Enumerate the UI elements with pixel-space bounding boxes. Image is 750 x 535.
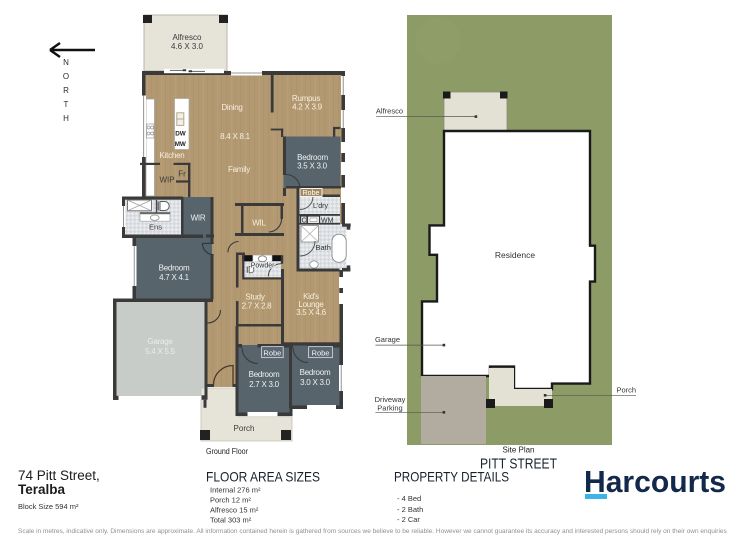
svg-text:Robe: Robe [303,190,320,197]
svg-text:Garage: Garage [375,335,400,344]
svg-text:WIP: WIP [159,176,174,185]
svg-text:DW: DW [175,130,186,137]
svg-text:Alfresco 15 m²: Alfresco 15 m² [210,506,259,515]
svg-text:2.7 X 3.0: 2.7 X 3.0 [249,380,280,389]
svg-text:Site Plan: Site Plan [502,446,534,455]
svg-text:Dining: Dining [221,103,242,112]
svg-text:Ens: Ens [149,223,162,232]
svg-text:4.2 X 3.9: 4.2 X 3.9 [292,103,323,112]
svg-text:Parking: Parking [377,404,402,413]
svg-text:3.5 X 3.0: 3.5 X 3.0 [297,162,328,171]
svg-text:Powder: Powder [251,263,275,270]
svg-text:Kitchen: Kitchen [160,151,185,160]
svg-text:WIL: WIL [252,219,266,228]
svg-text:Robe: Robe [263,348,281,357]
svg-text:Alfresco: Alfresco [173,33,202,42]
svg-text:Porch 12 m²: Porch 12 m² [210,496,251,505]
svg-text:WIR: WIR [191,214,206,223]
svg-text:Ground Floor: Ground Floor [206,446,248,456]
svg-text:- 2 Bath: - 2 Bath [397,505,423,514]
svg-text:3.0 X 3.0: 3.0 X 3.0 [300,378,331,387]
svg-text:Bath: Bath [316,243,331,252]
svg-text:R: R [63,86,69,95]
svg-text:Total 303 m²: Total 303 m² [210,516,252,525]
svg-text:Bedroom: Bedroom [159,264,190,273]
svg-text:Bedroom: Bedroom [249,370,280,379]
svg-text:N: N [63,58,69,67]
svg-text:Robe: Robe [312,348,330,357]
svg-text:Garage: Garage [147,337,173,346]
svg-text:Bedroom: Bedroom [297,153,328,162]
svg-text:O: O [63,72,69,81]
svg-text:Scale in metres, indicative on: Scale in metres, indicative only. Dimens… [18,528,728,535]
svg-text:Alfresco: Alfresco [376,107,403,116]
svg-text:3.5 X 4.6: 3.5 X 4.6 [296,308,327,317]
svg-text:5.4 X 5.5: 5.4 X 5.5 [145,347,176,356]
svg-text:Block Size 594 m²: Block Size 594 m² [18,502,79,511]
svg-text:- 4 Bed: - 4 Bed [397,494,421,503]
svg-text:74 Pitt Street,: 74 Pitt Street, [18,468,100,483]
svg-text:C: C [302,218,307,225]
svg-text:4.6 X 3.0: 4.6 X 3.0 [171,42,204,51]
svg-text:Internal 276 m²: Internal 276 m² [210,486,261,495]
svg-text:T: T [64,100,69,109]
svg-text:PROPERTY DETAILS: PROPERTY DETAILS [394,469,509,485]
svg-text:FLOOR AREA SIZES: FLOOR AREA SIZES [206,469,320,485]
svg-text:Porch: Porch [234,424,255,433]
svg-text:8.4 X 8.1: 8.4 X 8.1 [220,132,251,141]
svg-text:2.7 X 2.8: 2.7 X 2.8 [242,302,273,311]
svg-text:Residence: Residence [495,250,535,260]
svg-text:MW: MW [175,141,186,148]
svg-text:H: H [63,114,69,123]
svg-text:Study: Study [245,293,264,302]
svg-text:WM: WM [321,218,334,225]
svg-text:- 2 Car: - 2 Car [397,515,420,524]
svg-text:Fr: Fr [178,170,186,179]
svg-text:Bedroom: Bedroom [300,368,331,377]
svg-text:Porch: Porch [617,386,637,395]
svg-text:Teralba: Teralba [18,482,66,497]
svg-text:L'dry: L'dry [313,203,328,210]
svg-text:Family: Family [228,165,250,174]
svg-text:4.7 X 4.1: 4.7 X 4.1 [159,273,190,282]
svg-text:Harcourts: Harcourts [584,464,726,499]
